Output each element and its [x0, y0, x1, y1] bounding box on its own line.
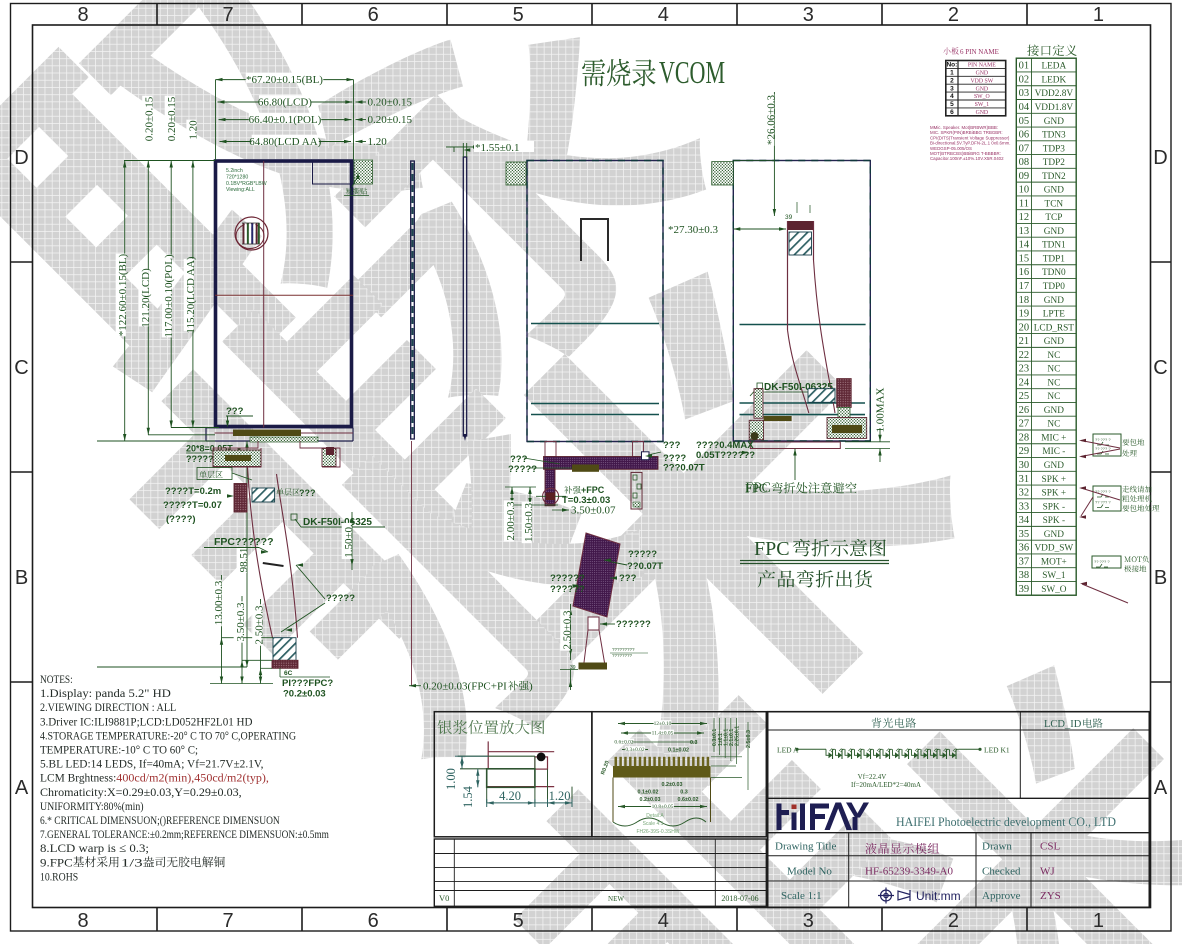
- svg-text:1: 1: [950, 70, 954, 77]
- svg-text:NC: NC: [1047, 365, 1060, 375]
- svg-text:0.2±0.03: 0.2±0.03: [662, 782, 683, 788]
- svg-text:24: 24: [1019, 377, 1030, 388]
- svg-text:66.40±0.1(POL): 66.40±0.1(POL): [249, 114, 322, 126]
- svg-text:Checked: Checked: [982, 866, 1021, 878]
- svg-text:NC: NC: [1047, 351, 1060, 361]
- svg-text:SW_O: SW_O: [1041, 585, 1067, 595]
- svg-text:02: 02: [1019, 74, 1030, 85]
- svg-text:14: 14: [1019, 240, 1030, 251]
- svg-text:?????: ?????: [508, 464, 537, 475]
- svg-text:31: 31: [1019, 474, 1030, 485]
- svg-text:FPC??????: FPC??????: [214, 536, 273, 548]
- svg-text:1: 1: [1093, 4, 1104, 26]
- svg-text:0.3: 0.3: [690, 740, 698, 746]
- svg-text:LPTE: LPTE: [1043, 310, 1066, 320]
- svg-text:4: 4: [658, 4, 669, 26]
- svg-text:FPC: FPC: [754, 538, 790, 560]
- svg-text:18: 18: [1019, 295, 1030, 306]
- svg-text:1.50±0.3: 1.50±0.3: [523, 502, 535, 542]
- svg-text:720*1280: 720*1280: [226, 174, 248, 180]
- svg-text:LEDK: LEDK: [1041, 75, 1066, 85]
- svg-text:MIC -: MIC -: [1042, 447, 1065, 457]
- svg-text:GND: GND: [1044, 461, 1064, 471]
- svg-text:121.20(LCD): 121.20(LCD): [140, 268, 152, 328]
- svg-text:SW_O: SW_O: [974, 94, 990, 100]
- svg-text:Model No: Model No: [787, 866, 832, 878]
- svg-text:NOTES:: NOTES:: [40, 672, 73, 686]
- svg-text:Drawing Title: Drawing Title: [775, 841, 837, 853]
- svg-text:MIC +: MIC +: [1041, 433, 1066, 443]
- svg-text:33: 33: [1019, 501, 1030, 512]
- svg-text:11.4±0.05: 11.4±0.05: [652, 731, 674, 737]
- svg-text:6.* CRITICAL DIMENSUON;()REFER: 6.* CRITICAL DIMENSUON;()REFERENCE DIMEN…: [40, 813, 280, 827]
- svg-text:???: ???: [226, 406, 244, 417]
- svg-text:*27.30±0.3: *27.30±0.3: [668, 224, 719, 236]
- svg-text:98.51: 98.51: [238, 548, 250, 573]
- svg-text:SPK -: SPK -: [1043, 502, 1065, 512]
- svg-text:ZYS: ZYS: [1040, 890, 1061, 902]
- svg-text:12±0.10: 12±0.10: [654, 721, 672, 727]
- svg-text:0.05T??????: 0.05T??????: [696, 450, 755, 461]
- svg-text:TCP: TCP: [1045, 213, 1062, 223]
- svg-text:If=20mA/LED*2=40mA: If=20mA/LED*2=40mA: [851, 781, 921, 789]
- svg-text:???: ???: [663, 440, 681, 451]
- svg-text:*26.06±0.3: *26.06±0.3: [766, 94, 778, 145]
- svg-text:01: 01: [1019, 61, 1030, 72]
- svg-text:10.8±0.05: 10.8±0.05: [652, 804, 674, 810]
- svg-text:SPK -: SPK -: [1043, 516, 1065, 526]
- svg-text:1.54: 1.54: [461, 785, 475, 808]
- svg-text:???0.07T: ???0.07T: [663, 463, 705, 474]
- svg-text:(????): (????): [166, 514, 196, 525]
- svg-text:NC: NC: [1047, 378, 1060, 388]
- svg-text:LCD_ID: LCD_ID: [1044, 719, 1082, 730]
- svg-text:VDD_SW: VDD_SW: [1034, 544, 1073, 554]
- svg-text:LCM Brghtness:: LCM Brghtness:: [40, 771, 116, 785]
- svg-text:03: 03: [1019, 88, 1030, 99]
- svg-text:*1.55±0.1: *1.55±0.1: [475, 142, 520, 154]
- svg-text:22: 22: [1019, 350, 1030, 361]
- svg-text:16: 16: [1019, 267, 1030, 278]
- svg-text:LCD_RST: LCD_RST: [1034, 323, 1075, 333]
- svg-text:4: 4: [658, 910, 669, 932]
- svg-text:GND: GND: [1044, 296, 1064, 306]
- svg-text:Viewing:ALL: Viewing:ALL: [226, 187, 255, 193]
- svg-text:Capacitor.100nF.±10%.10V.X5R.0: Capacitor.100nF.±10%.10V.X5R.0402: [930, 156, 1004, 161]
- svg-text:*122.60±0.15(BL): *122.60±0.15(BL): [117, 253, 129, 336]
- svg-text:SW_1: SW_1: [1042, 571, 1066, 581]
- svg-text:8.LCD warp is ≤ 0.3;: 8.LCD warp is ≤ 0.3;: [40, 841, 149, 855]
- svg-text:?0.2±0.03: ?0.2±0.03: [283, 689, 326, 700]
- svg-text:TDP0: TDP0: [1043, 282, 1066, 292]
- svg-text:????T=0.2m: ????T=0.2m: [165, 486, 221, 497]
- svg-text:TDN2: TDN2: [1042, 172, 1066, 182]
- svg-text:NC: NC: [1047, 420, 1060, 430]
- svg-text:TEMPERATURE:-10° C TO 60° C;: TEMPERATURE:-10° C TO 60° C;: [40, 743, 198, 757]
- svg-text:2.50±0.3: 2.50±0.3: [254, 605, 266, 645]
- svg-text:2.25±0.1: 2.25±0.1: [735, 726, 741, 746]
- svg-text:4.20: 4.20: [499, 789, 521, 803]
- svg-text:TCN: TCN: [1045, 199, 1064, 209]
- svg-text:GND: GND: [976, 86, 989, 92]
- svg-text:29: 29: [1019, 446, 1030, 457]
- svg-text:VDD2.8V: VDD2.8V: [1035, 89, 1074, 99]
- svg-text:FPC: FPC: [745, 482, 767, 496]
- svg-text:6 PIN NAME: 6 PIN NAME: [960, 48, 999, 56]
- svg-text:1.20: 1.20: [368, 136, 388, 148]
- svg-text:TDP2: TDP2: [1043, 158, 1066, 168]
- svg-text:8: 8: [77, 4, 88, 26]
- svg-text:06: 06: [1019, 130, 1030, 141]
- svg-text:3: 3: [803, 910, 814, 932]
- svg-text:13.00±0.3: 13.00±0.3: [213, 580, 225, 625]
- svg-text:C: C: [1153, 357, 1167, 379]
- svg-text:15: 15: [1019, 253, 1030, 264]
- svg-text:9.FPC: 9.FPC: [40, 855, 73, 869]
- svg-text:VCOM: VCOM: [659, 54, 725, 90]
- svg-text:NC: NC: [1047, 392, 1060, 402]
- svg-text:DK-F50I-06325: DK-F50I-06325: [303, 517, 372, 528]
- svg-text:D: D: [1153, 147, 1167, 169]
- svg-text:*67.20±0.15(BL): *67.20±0.15(BL): [246, 74, 323, 86]
- svg-text:32: 32: [1019, 488, 1030, 499]
- svg-text:2018-07-06: 2018-07-06: [721, 894, 758, 903]
- svg-text:04: 04: [1019, 102, 1030, 113]
- svg-text:5: 5: [513, 4, 524, 26]
- svg-text:HAIFEI Photoelectric developme: HAIFEI Photoelectric development CO., LT…: [896, 814, 1116, 829]
- svg-text:1: 1: [1093, 910, 1104, 932]
- svg-text:7: 7: [223, 910, 234, 932]
- svg-text:??0.07T: ??0.07T: [627, 561, 663, 572]
- svg-text:UNIFORMITY:80%(min): UNIFORMITY:80%(min): [40, 799, 144, 813]
- svg-text:3.50±0.3: 3.50±0.3: [235, 602, 247, 642]
- svg-text:09: 09: [1019, 171, 1030, 182]
- svg-text:+FPC: +FPC: [581, 485, 605, 495]
- svg-text:10.ROHS: 10.ROHS: [40, 869, 78, 883]
- svg-text:17: 17: [1019, 281, 1030, 292]
- svg-text:28: 28: [1019, 432, 1030, 443]
- svg-text:Unit:mm: Unit:mm: [916, 889, 961, 903]
- svg-text:37: 37: [1019, 556, 1030, 567]
- svg-text:66.80(LCD): 66.80(LCD): [258, 97, 312, 109]
- svg-text:5: 5: [513, 910, 524, 932]
- svg-text:D: D: [14, 147, 28, 169]
- svg-text:7: 7: [223, 4, 234, 26]
- svg-text:1.20: 1.20: [549, 789, 571, 803]
- svg-text:GND: GND: [1044, 186, 1064, 196]
- svg-text:117.00±0.10(POL): 117.00±0.10(POL): [163, 254, 175, 338]
- svg-text:TDN3: TDN3: [1042, 131, 1066, 141]
- svg-text:HF-65239-3349-A0: HF-65239-3349-A0: [865, 866, 953, 878]
- svg-text:4.STORAGE TEMPERATURE:-20° C T: 4.STORAGE TEMPERATURE:-20° C TO 70° C,OP…: [40, 728, 296, 742]
- svg-text:0.20±0.15: 0.20±0.15: [144, 96, 156, 141]
- svg-text:05: 05: [1019, 116, 1030, 127]
- svg-text:11: 11: [1019, 198, 1029, 209]
- svg-text:08: 08: [1019, 157, 1030, 168]
- svg-text:GND: GND: [1044, 337, 1064, 347]
- svg-text:0.3±0.02: 0.3±0.02: [625, 747, 644, 753]
- svg-text:1.50±0.: 1.50±0.: [343, 524, 355, 558]
- svg-text:2.5±0.3: 2.5±0.3: [746, 730, 752, 748]
- svg-text:): ): [529, 681, 533, 693]
- svg-text:0.20±0.15: 0.20±0.15: [368, 97, 413, 109]
- svg-text:3: 3: [803, 4, 814, 26]
- svg-text:39: 39: [1019, 584, 1030, 595]
- svg-text:400cd/m2(min),450cd/m2(typ),: 400cd/m2(min),450cd/m2(typ),: [116, 771, 269, 785]
- svg-text:??????: ??????: [550, 573, 585, 584]
- svg-text:0.6±0.02: 0.6±0.02: [614, 740, 633, 746]
- svg-text:3.50±0.07: 3.50±0.07: [571, 505, 616, 517]
- svg-text:34: 34: [1019, 515, 1030, 526]
- svg-text:TDP1: TDP1: [1043, 254, 1066, 264]
- svg-text:GND: GND: [976, 110, 989, 116]
- svg-text:6: 6: [950, 109, 954, 116]
- svg-text:?????: ?????: [186, 454, 214, 464]
- svg-text:A: A: [15, 777, 29, 799]
- svg-text:FH26-39S-0.3SHW: FH26-39S-0.3SHW: [636, 829, 679, 835]
- svg-text:1.Display: panda 5.2" HD: 1.Display: panda 5.2" HD: [40, 686, 171, 700]
- svg-text:5.2inch: 5.2inch: [226, 168, 243, 174]
- svg-text:GND: GND: [1044, 117, 1064, 127]
- svg-text:?? ??? ?: ?? ??? ?: [1095, 500, 1111, 505]
- svg-text:1/3: 1/3: [121, 855, 143, 869]
- svg-text:0.2±0.03: 0.2±0.03: [640, 797, 661, 803]
- svg-text:SW_1: SW_1: [975, 102, 990, 108]
- svg-text:0.1±0.02: 0.1±0.02: [668, 748, 689, 754]
- svg-text:VDD SW: VDD SW: [970, 78, 993, 84]
- svg-text:35: 35: [1019, 529, 1030, 540]
- svg-text:3: 3: [950, 85, 954, 92]
- svg-text:12: 12: [1019, 212, 1030, 223]
- svg-text:30: 30: [1019, 460, 1030, 471]
- svg-text:?? ??? ?: ?? ??? ?: [1094, 559, 1110, 564]
- svg-text:19: 19: [1019, 309, 1030, 320]
- svg-text:6C: 6C: [284, 670, 293, 677]
- svg-text:3.Driver IC:ILI9881P;LCD:LD052: 3.Driver IC:ILI9881P;LCD:LD052HF2L01 HD: [40, 714, 253, 728]
- svg-text:LEDA: LEDA: [1041, 62, 1066, 72]
- svg-text:64.80(LCD AA): 64.80(LCD AA): [249, 136, 321, 148]
- svg-text:SPK +: SPK +: [1042, 489, 1067, 499]
- svg-text:Approve: Approve: [982, 890, 1021, 902]
- svg-text:????????: ????????: [612, 653, 633, 658]
- svg-text:SPK +: SPK +: [1042, 475, 1067, 485]
- svg-text:23: 23: [1019, 364, 1030, 375]
- svg-text:TDN0: TDN0: [1042, 268, 1066, 278]
- svg-text:115.20(LCD AA): 115.20(LCD AA): [185, 256, 197, 334]
- svg-text:6: 6: [368, 910, 379, 932]
- svg-text:Drawn: Drawn: [982, 841, 1012, 853]
- svg-text:25: 25: [1019, 391, 1030, 402]
- svg-text:?? ??? ?: ?? ??? ?: [1095, 446, 1111, 451]
- svg-text:4: 4: [950, 93, 954, 100]
- svg-text:GND: GND: [1044, 530, 1064, 540]
- svg-text:2: 2: [948, 4, 959, 26]
- svg-text:0.1BV*RGB*LBW: 0.1BV*RGB*LBW: [226, 181, 267, 187]
- svg-text:?? ??? ?: ?? ??? ?: [1095, 437, 1111, 442]
- svg-text:?????T=0.07: ?????T=0.07: [163, 500, 222, 511]
- svg-text:Chromaticity:X=0.29±0.03,Y=0.2: Chromaticity:X=0.29±0.03,Y=0.29±0.03,: [40, 785, 242, 799]
- svg-text:No:: No:: [946, 62, 957, 69]
- svg-text:PIN NAME: PIN NAME: [968, 63, 996, 69]
- svg-text:0.20±0.03(FPC+PI: 0.20±0.03(FPC+PI: [423, 681, 507, 693]
- svg-text:CSL: CSL: [1040, 841, 1060, 853]
- svg-text:0.3: 0.3: [680, 790, 688, 796]
- svg-text:39: 39: [785, 214, 793, 221]
- svg-text:13: 13: [1019, 226, 1030, 237]
- svg-text:38: 38: [1019, 570, 1030, 581]
- svg-text:0.6±0.02: 0.6±0.02: [678, 797, 699, 803]
- svg-text:5: 5: [950, 101, 954, 108]
- svg-text:NEW: NEW: [608, 895, 624, 903]
- svg-text:MOT+: MOT+: [1041, 557, 1067, 567]
- svg-text:26: 26: [1019, 405, 1030, 416]
- svg-text:1.20: 1.20: [188, 120, 200, 140]
- svg-text:WJ: WJ: [1040, 866, 1055, 878]
- svg-text:LED K1: LED K1: [984, 746, 1010, 755]
- svg-text:Scale 4:1: Scale 4:1: [643, 821, 664, 827]
- svg-text:GND: GND: [1044, 227, 1064, 237]
- svg-text:Vf=22.4V: Vf=22.4V: [858, 773, 887, 781]
- svg-text:B: B: [1154, 567, 1167, 589]
- svg-text:??????: ??????: [550, 584, 585, 595]
- svg-text:1.00MAX: 1.00MAX: [874, 387, 886, 432]
- svg-text:PI???FPC?: PI???FPC?: [282, 678, 333, 689]
- svg-text:21: 21: [1019, 336, 1030, 347]
- svg-text:GND: GND: [1044, 406, 1064, 416]
- svg-text:8: 8: [77, 910, 88, 932]
- svg-text:20: 20: [1019, 322, 1030, 333]
- svg-text:0.1±0.02: 0.1±0.02: [638, 790, 659, 796]
- svg-text:2.VIEWING DIRECTION : ALL: 2.VIEWING DIRECTION : ALL: [40, 700, 176, 714]
- svg-text:07: 07: [1019, 143, 1030, 154]
- svg-text:1.00: 1.00: [444, 768, 458, 790]
- svg-text:???: ???: [619, 573, 637, 584]
- svg-text:0.20±0.15: 0.20±0.15: [368, 114, 413, 126]
- svg-text:??????: ??????: [616, 619, 651, 630]
- svg-text:10: 10: [1019, 185, 1030, 196]
- svg-text:27: 27: [1019, 419, 1030, 430]
- svg-text:GND: GND: [976, 71, 989, 77]
- svg-text:2: 2: [950, 77, 954, 84]
- svg-text:2.00±0.3: 2.00±0.3: [505, 501, 517, 541]
- svg-text:TDN1: TDN1: [1042, 241, 1066, 251]
- svg-text:2: 2: [948, 910, 959, 932]
- svg-text:?????: ?????: [326, 593, 355, 604]
- svg-text:2.50±0.3: 2.50±0.3: [562, 610, 574, 650]
- svg-text:?????????: ?????????: [612, 647, 635, 652]
- svg-text:C: C: [14, 357, 28, 379]
- svg-text:7.GENERAL TOLERANCE:±0.2mm;REF: 7.GENERAL TOLERANCE:±0.2mm;REFERENCE DIM…: [40, 827, 329, 841]
- svg-text:TDP3: TDP3: [1043, 144, 1066, 154]
- svg-text:A: A: [1154, 777, 1168, 799]
- svg-text:5.BL LED:14 LEDS, If=40mA; Vf=: 5.BL LED:14 LEDS, If=40mA; Vf=21.7V±2.1V…: [40, 757, 263, 771]
- svg-text:???: ???: [299, 488, 316, 498]
- svg-text:6: 6: [368, 4, 379, 26]
- svg-text:Detail:A: Detail:A: [646, 813, 664, 819]
- svg-text:36: 36: [1019, 543, 1030, 554]
- svg-text:Scale 1:1: Scale 1:1: [781, 890, 822, 902]
- svg-text:0.20±0.15: 0.20±0.15: [166, 96, 178, 141]
- svg-text:VDD1.8V: VDD1.8V: [1035, 103, 1074, 113]
- svg-text:B: B: [15, 567, 28, 589]
- svg-text:V0: V0: [439, 893, 449, 903]
- svg-text:?????: ?????: [628, 549, 657, 560]
